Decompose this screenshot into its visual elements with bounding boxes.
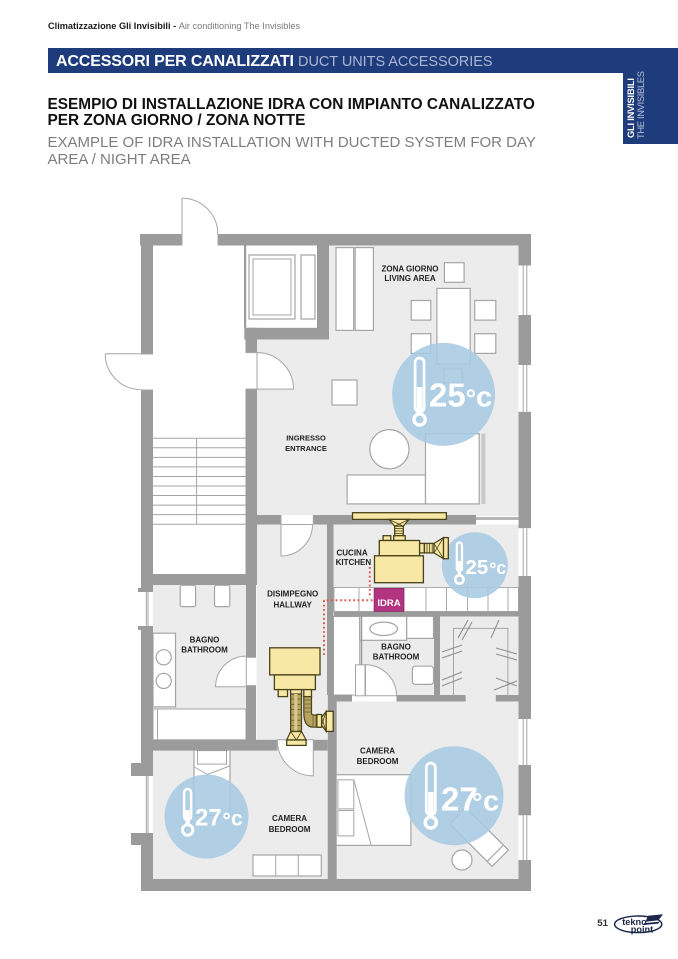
svg-text:27: 27 — [195, 804, 222, 831]
svg-text:ZONA GIORNO: ZONA GIORNO — [381, 265, 438, 274]
svg-text:BATHROOM: BATHROOM — [373, 652, 420, 661]
svg-text:BATHROOM: BATHROOM — [181, 646, 228, 655]
svg-text:IDRA: IDRA — [377, 598, 400, 609]
svg-text:LIVING AREA: LIVING AREA — [384, 274, 435, 283]
svg-text:25: 25 — [466, 556, 489, 579]
svg-text:BAGNO: BAGNO — [381, 642, 411, 651]
svg-text:KITCHEN: KITCHEN — [336, 558, 372, 567]
svg-text:c: c — [476, 382, 492, 414]
svg-text:HALLWAY: HALLWAY — [274, 601, 313, 610]
svg-text:25: 25 — [429, 377, 466, 414]
svg-text:CUCINA: CUCINA — [337, 549, 368, 558]
svg-text:BEDROOM: BEDROOM — [269, 825, 311, 834]
svg-text:DISIMPEGNO: DISIMPEGNO — [267, 589, 318, 598]
svg-text:BEDROOM: BEDROOM — [357, 757, 399, 766]
svg-text:CAMERA: CAMERA — [272, 814, 307, 823]
svg-text:BAGNO: BAGNO — [190, 636, 220, 645]
svg-text:27: 27 — [441, 780, 478, 817]
svg-text:CAMERA: CAMERA — [360, 746, 395, 755]
svg-text:c: c — [231, 807, 243, 830]
svg-text:ENTRANCE: ENTRANCE — [285, 444, 327, 453]
svg-text:c: c — [483, 785, 499, 817]
svg-text:INGRESSO: INGRESSO — [286, 433, 326, 442]
svg-text:51: 51 — [597, 918, 608, 929]
svg-text:point: point — [631, 925, 653, 935]
svg-text:c: c — [496, 558, 506, 578]
